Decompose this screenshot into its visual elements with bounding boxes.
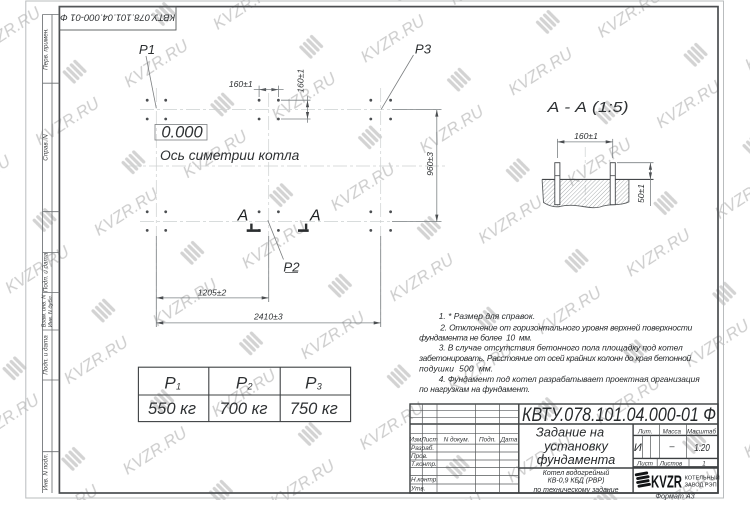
svg-text:А: А (309, 207, 321, 224)
svg-text:Т.контр.: Т.контр. (411, 461, 437, 468)
svg-text:Лист: Лист (420, 437, 438, 444)
svg-text:1: 1 (702, 460, 705, 467)
svg-text:Ось симетрии котла: Ось симетрии котла (160, 148, 300, 163)
svg-text:А - А (1:5): А - А (1:5) (546, 99, 628, 116)
svg-text:по техническому задание: по техническому задание (533, 486, 618, 494)
svg-text:Пров.: Пров. (411, 453, 428, 460)
svg-text:1205±2: 1205±2 (198, 287, 227, 297)
svg-text:1: 1 (176, 382, 181, 392)
svg-text:Задание на: Задание на (536, 424, 604, 439)
svg-text:P1: P1 (139, 42, 155, 57)
svg-text:Дата: Дата (500, 437, 518, 444)
svg-text:Утв.: Утв. (410, 486, 426, 493)
svg-text:N докум.: N докум. (444, 436, 470, 444)
svg-text:ЗАВОД РЭП: ЗАВОД РЭП (685, 482, 717, 488)
svg-text:Перв. примен.: Перв. примен. (43, 28, 50, 70)
svg-text:КВ-0,9 КБД (РВР): КВ-0,9 КБД (РВР) (548, 478, 605, 485)
svg-text:фундамента не более 10 мм.: фундамента не более 10 мм. (419, 333, 532, 343)
svg-text:А: А (237, 207, 249, 224)
svg-text:960±3: 960±3 (425, 152, 435, 176)
svg-text:Лит.: Лит. (637, 428, 653, 435)
svg-text:Подп. и дата: Подп. и дата (42, 252, 50, 292)
svg-text:КВТУ.078.101.04.000-01 Ф: КВТУ.078.101.04.000-01 Ф (522, 405, 716, 426)
svg-text:Взам. инв. N: Взам. инв. N (42, 294, 48, 328)
svg-text:Масса: Масса (663, 428, 682, 435)
svg-text:по нагрузкам на фундамент.: по нагрузкам на фундамент. (419, 384, 530, 394)
svg-text:KVZR: KVZR (651, 471, 682, 491)
svg-text:160±1: 160±1 (574, 131, 598, 141)
svg-text:Подп. и дата: Подп. и дата (42, 335, 50, 375)
svg-text:Инв. N подл.: Инв. N подл. (42, 454, 50, 491)
svg-text:4. Фундамент под котел разраба: 4. Фундамент под котел разрабатывает про… (439, 374, 701, 384)
svg-text:Масштаб: Масштаб (687, 428, 716, 435)
svg-text:3: 3 (317, 382, 322, 392)
svg-text:1. * Размер для справок.: 1. * Размер для справок. (439, 311, 536, 321)
svg-text:–: – (668, 441, 675, 451)
svg-text:2: 2 (246, 382, 252, 392)
svg-text:P2: P2 (283, 259, 300, 274)
svg-text:P: P (164, 374, 176, 393)
svg-text:160±1: 160±1 (296, 69, 306, 93)
svg-text:КВТУ.078.101.04.000-01 Ф: КВТУ.078.101.04.000-01 Ф (60, 11, 175, 22)
svg-text:И: И (634, 442, 642, 454)
svg-text:700 кг: 700 кг (219, 400, 267, 418)
svg-text:0.000: 0.000 (161, 124, 203, 142)
svg-text:Листов: Листов (659, 460, 683, 467)
svg-text:50±1: 50±1 (636, 184, 646, 203)
svg-text:Лист: Лист (636, 460, 653, 467)
svg-text:2410±3: 2410±3 (253, 311, 283, 321)
svg-text:Н.контр.: Н.контр. (411, 477, 438, 484)
svg-text:750 кг: 750 кг (290, 400, 338, 418)
svg-text:3. В случае отсутствия бетонно: 3. В случае отсутствия бетонного пола пл… (439, 343, 683, 353)
svg-text:Инв. N дубл.: Инв. N дубл. (48, 295, 54, 327)
svg-text:550 кг: 550 кг (148, 400, 196, 418)
svg-text:Подп.: Подп. (479, 436, 496, 444)
svg-text:Справ. N: Справ. N (43, 134, 50, 161)
svg-text:2. Отклонение от горизонтально: 2. Отклонение от горизонтального уровня … (439, 323, 692, 333)
svg-text:Формат А3: Формат А3 (655, 492, 694, 500)
svg-text:Разраб.: Разраб. (411, 444, 434, 452)
svg-text:забетонировать. Расстояние от: забетонировать. Расстояние от осей крайн… (418, 353, 691, 363)
svg-text:1:20: 1:20 (694, 442, 710, 454)
svg-text:P: P (236, 374, 248, 393)
svg-text:P3: P3 (415, 42, 432, 57)
svg-text:160±1: 160±1 (229, 79, 253, 89)
svg-text:P: P (305, 374, 317, 393)
svg-text:Котел водогрейный: Котел водогрейный (543, 469, 610, 477)
svg-text:подушки 500 мм.: подушки 500 мм. (419, 364, 493, 374)
svg-text:КОТЕЛЬНЫЙ: КОТЕЛЬНЫЙ (685, 474, 720, 482)
svg-text:фундамента: фундамента (537, 452, 616, 467)
